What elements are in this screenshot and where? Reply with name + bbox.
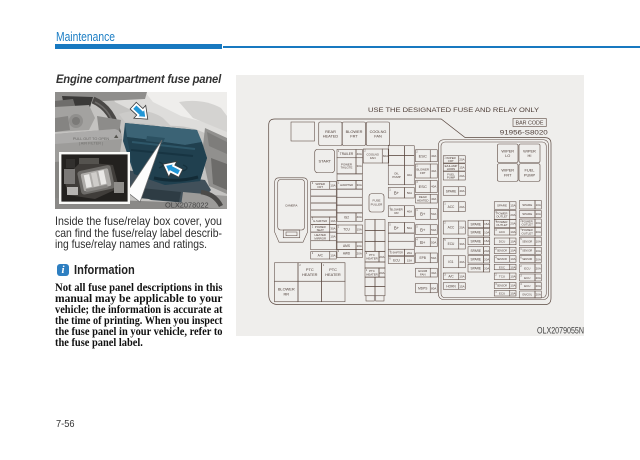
svg-text:SENSOR: SENSOR [522, 258, 532, 261]
svg-text:REAR: REAR [325, 129, 336, 134]
svg-text:FRT: FRT [504, 172, 512, 177]
svg-text:10A: 10A [357, 244, 362, 248]
svg-text:B+: B+ [420, 212, 426, 217]
svg-text:ESC: ESC [499, 265, 506, 269]
svg-text:1: 1 [444, 203, 446, 205]
svg-text:B+: B+ [394, 191, 400, 196]
svg-text:20A: 20A [379, 255, 384, 259]
svg-text:START: START [319, 158, 332, 163]
svg-text:USE THE DESIGNATED FUSE AND RE: USE THE DESIGNATED FUSE AND RELAY ONLY [368, 107, 539, 114]
svg-text:20A: 20A [459, 205, 464, 209]
svg-text:15A: 15A [459, 166, 464, 170]
svg-text:OUTLET: OUTLET [522, 231, 534, 235]
svg-text:HEATER: HEATER [366, 272, 378, 276]
svg-text:PTC: PTC [306, 267, 314, 272]
svg-text:1: 1 [416, 210, 418, 212]
svg-text:IG2: IG2 [344, 215, 349, 219]
svg-text:PUMP: PUMP [392, 175, 400, 179]
svg-text:3: 3 [444, 275, 446, 277]
svg-text:4: 4 [416, 240, 418, 242]
svg-text:FUEL: FUEL [525, 168, 536, 173]
svg-text:A/C: A/C [448, 275, 454, 279]
svg-text:PUMP: PUMP [447, 176, 455, 180]
svg-text:40A: 40A [459, 260, 464, 264]
svg-text:ECU: ECU [524, 284, 530, 288]
svg-text:40A: 40A [407, 209, 412, 213]
svg-text:PTC: PTC [329, 267, 337, 272]
svg-text:40A: 40A [357, 215, 362, 219]
svg-text:20A: 20A [379, 271, 384, 275]
svg-text:10A: 10A [510, 284, 515, 288]
svg-text:WIPER: WIPER [501, 168, 514, 173]
svg-text:ACC: ACC [499, 230, 506, 234]
svg-text:ECU: ECU [448, 242, 455, 246]
svg-text:15A: 15A [407, 258, 412, 262]
svg-text:50A: 50A [431, 240, 436, 244]
svg-text:10A: 10A [510, 291, 515, 295]
svg-text:FAN: FAN [370, 156, 376, 160]
svg-text:PULLER: PULLER [371, 202, 384, 206]
svg-text:FRT: FRT [350, 134, 358, 139]
svg-text:20A: 20A [484, 249, 489, 253]
svg-text:50A: 50A [431, 212, 436, 216]
svg-text:TAILGTE: TAILGTE [341, 166, 353, 170]
svg-text:PUMP: PUMP [524, 172, 536, 177]
svg-text:10A: 10A [330, 219, 335, 223]
svg-text:10A: 10A [510, 240, 515, 244]
svg-text:SPARE: SPARE [470, 258, 481, 262]
svg-text:B+: B+ [420, 240, 426, 245]
svg-text:A/C: A/C [318, 254, 324, 258]
svg-text:40A: 40A [357, 152, 362, 156]
svg-text:10A: 10A [510, 265, 515, 269]
svg-text:20A: 20A [536, 221, 541, 225]
svg-text:10A: 10A [330, 184, 335, 188]
svg-text:20A: 20A [484, 266, 489, 270]
svg-text:40A: 40A [431, 169, 436, 173]
svg-text:OLX2078022: OLX2078022 [165, 201, 209, 210]
svg-text:20A: 20A [536, 230, 541, 234]
svg-text:SENSOR: SENSOR [497, 284, 507, 287]
svg-text:2: 2 [312, 183, 314, 185]
svg-text:40A: 40A [431, 197, 436, 201]
svg-text:WIPER: WIPER [523, 149, 536, 154]
svg-text:6: 6 [389, 258, 391, 260]
svg-text:CAMERA: CAMERA [285, 204, 297, 208]
svg-text:SENSOR: SENSOR [497, 258, 507, 261]
svg-text:1: 1 [495, 292, 497, 294]
svg-text:SPARE: SPARE [497, 204, 507, 208]
svg-text:ESC: ESC [419, 184, 427, 189]
svg-text:50A: 50A [407, 191, 412, 195]
svg-text:SPARE: SPARE [470, 249, 481, 253]
svg-text:1: 1 [389, 189, 391, 191]
svg-text:20A: 20A [536, 212, 541, 216]
svg-text:10A: 10A [459, 275, 464, 279]
svg-text:30A: 30A [357, 164, 362, 168]
svg-text:EPB: EPB [420, 256, 426, 260]
svg-text:10A: 10A [510, 257, 515, 261]
svg-text:OUTLET: OUTLET [522, 223, 534, 227]
svg-text:RR: RR [283, 291, 289, 296]
svg-text:1: 1 [366, 270, 368, 272]
svg-text:10A: 10A [536, 240, 541, 244]
svg-text:BAR CODE: BAR CODE [516, 120, 544, 126]
svg-text:HORN: HORN [446, 284, 456, 288]
svg-text:BLOWER: BLOWER [278, 287, 295, 292]
svg-text:LO: LO [505, 153, 510, 158]
svg-text:30A: 30A [330, 227, 335, 231]
svg-text:2: 2 [338, 251, 340, 253]
svg-text:SPARE: SPARE [522, 212, 532, 216]
svg-text:10A: 10A [510, 249, 515, 253]
svg-text:40A: 40A [459, 189, 464, 193]
svg-text:DCU: DCU [499, 240, 506, 244]
svg-text:3: 3 [520, 276, 522, 278]
svg-text:SPARE: SPARE [470, 231, 481, 235]
svg-text:3: 3 [495, 230, 497, 232]
svg-text:5: 5 [389, 224, 391, 226]
svg-text:HEATER: HEATER [366, 257, 378, 261]
svg-text:5: 5 [444, 240, 446, 242]
svg-text:20A: 20A [357, 252, 362, 256]
svg-text:COOLNG: COOLNG [370, 129, 387, 134]
svg-text:OUTLET: OUTLET [496, 215, 508, 219]
svg-text:SENSOR: SENSOR [522, 240, 532, 243]
svg-text:SPARE: SPARE [470, 266, 481, 270]
svg-text:10A: 10A [536, 249, 541, 253]
svg-text:TCU: TCU [499, 275, 505, 279]
svg-text:10A: 10A [510, 230, 515, 234]
svg-text:2: 2 [366, 253, 368, 255]
svg-text:1: 1 [338, 182, 340, 184]
svg-text:SPARE: SPARE [470, 239, 481, 243]
svg-text:SEAT: SEAT [317, 228, 325, 232]
svg-text:HEATER: HEATER [325, 272, 341, 277]
svg-text:BLOWER: BLOWER [346, 129, 363, 134]
svg-text:50A: 50A [407, 226, 412, 230]
svg-text:15A: 15A [357, 227, 362, 231]
svg-text:15A: 15A [484, 239, 489, 243]
svg-text:15A: 15A [459, 284, 464, 288]
svg-text:30A: 30A [431, 271, 436, 275]
svg-text:WIPER: WIPER [501, 149, 514, 154]
svg-text:HEATED: HEATED [417, 198, 429, 202]
svg-text:ECU: ECU [499, 291, 505, 295]
svg-text:HORN: HORN [447, 167, 456, 171]
svg-text:B+: B+ [420, 227, 426, 232]
svg-text:TRAILER: TRAILER [340, 152, 354, 156]
svg-text:RR: RR [394, 211, 398, 215]
svg-text:ACC: ACC [448, 226, 455, 230]
svg-text:SENSOR: SENSOR [497, 249, 507, 252]
svg-text:20A: 20A [407, 251, 412, 255]
svg-text:15A: 15A [484, 222, 489, 226]
svg-text:20A: 20A [536, 267, 541, 271]
svg-text:30A: 30A [459, 242, 464, 246]
svg-text:E-SHIFTER: E-SHIFTER [390, 252, 403, 255]
svg-text:SPARE: SPARE [522, 203, 532, 207]
svg-text:ACC: ACC [448, 205, 455, 209]
svg-text:( AIR FILTER ): ( AIR FILTER ) [79, 142, 104, 146]
svg-text:10A: 10A [484, 231, 489, 235]
svg-text:40A: 40A [407, 173, 412, 177]
svg-text:2: 2 [520, 266, 522, 268]
svg-text:MIRROR: MIRROR [314, 236, 326, 240]
svg-text:20A: 20A [459, 158, 464, 162]
svg-text:SENSOR: SENSOR [522, 250, 532, 253]
svg-text:2: 2 [312, 226, 314, 228]
svg-text:60A: 60A [383, 154, 388, 158]
svg-text:20A: 20A [536, 257, 541, 261]
svg-text:ECU: ECU [524, 267, 530, 271]
svg-text:10A: 10A [510, 275, 515, 279]
svg-text:10A: 10A [330, 254, 335, 258]
svg-text:AWD: AWD [343, 252, 351, 256]
svg-text:PULL OUT TO OPEN: PULL OUT TO OPEN [73, 137, 110, 141]
svg-text:OUTLET: OUTLET [496, 223, 508, 227]
svg-text:10A: 10A [536, 203, 541, 207]
svg-text:20A: 20A [510, 222, 515, 226]
svg-text:50A: 50A [431, 256, 436, 260]
svg-text:30A: 30A [357, 183, 362, 187]
svg-text:SPARE: SPARE [470, 222, 481, 226]
svg-text:E-SHIFTER: E-SHIFTER [313, 219, 327, 223]
svg-text:ECU: ECU [393, 258, 400, 262]
svg-text:40A: 40A [431, 154, 436, 158]
svg-text:FAN: FAN [374, 134, 382, 139]
svg-text:HEATER: HEATER [302, 272, 318, 277]
svg-text:IG1: IG1 [448, 260, 453, 264]
svg-text:ECU: ECU [524, 276, 530, 280]
svg-text:20A: 20A [536, 276, 541, 280]
svg-text:80A: 80A [431, 286, 436, 290]
svg-text:1: 1 [338, 227, 340, 229]
svg-text:20A: 20A [484, 258, 489, 262]
svg-text:2: 2 [495, 275, 497, 277]
svg-text:HEATED: HEATED [323, 134, 339, 139]
svg-text:2: 2 [299, 265, 301, 267]
svg-text:AMS: AMS [343, 244, 350, 248]
svg-text:HI: HI [528, 153, 532, 158]
svg-text:SPARE: SPARE [446, 189, 457, 193]
svg-text:MDPS: MDPS [418, 286, 427, 290]
svg-text:H/ADPTER: H/ADPTER [340, 183, 353, 187]
svg-text:40A: 40A [431, 185, 436, 189]
svg-text:50A: 50A [431, 228, 436, 232]
svg-text:2: 2 [416, 152, 418, 154]
svg-text:10A: 10A [330, 235, 335, 239]
svg-text:15A: 15A [510, 204, 515, 208]
svg-text:EN/COIL: EN/COIL [522, 293, 532, 296]
svg-text:4: 4 [520, 284, 522, 286]
svg-text:FRT: FRT [420, 171, 426, 175]
svg-text:91956-S8020: 91956-S8020 [500, 130, 548, 137]
svg-text:2: 2 [364, 151, 366, 153]
svg-text:1: 1 [416, 166, 418, 168]
svg-text:20A: 20A [459, 174, 464, 178]
svg-text:TCU: TCU [343, 227, 350, 231]
svg-text:B+: B+ [394, 226, 400, 231]
svg-text:FRT: FRT [317, 185, 323, 189]
svg-text:2: 2 [312, 253, 314, 255]
svg-text:OLX2079055N: OLX2079055N [537, 326, 584, 336]
svg-text:FUSE: FUSE [372, 199, 380, 203]
svg-text:FRT: FRT [448, 159, 454, 163]
svg-text:1: 1 [323, 265, 325, 267]
svg-text:20A: 20A [536, 293, 541, 297]
svg-text:ESC: ESC [419, 153, 427, 158]
svg-text:20A: 20A [510, 213, 515, 217]
svg-text:20A: 20A [459, 226, 464, 230]
svg-text:FAN: FAN [420, 272, 426, 276]
svg-text:3: 3 [416, 182, 418, 184]
svg-text:20A: 20A [536, 284, 541, 288]
svg-text:2: 2 [444, 223, 446, 225]
svg-text:5: 5 [416, 227, 418, 229]
